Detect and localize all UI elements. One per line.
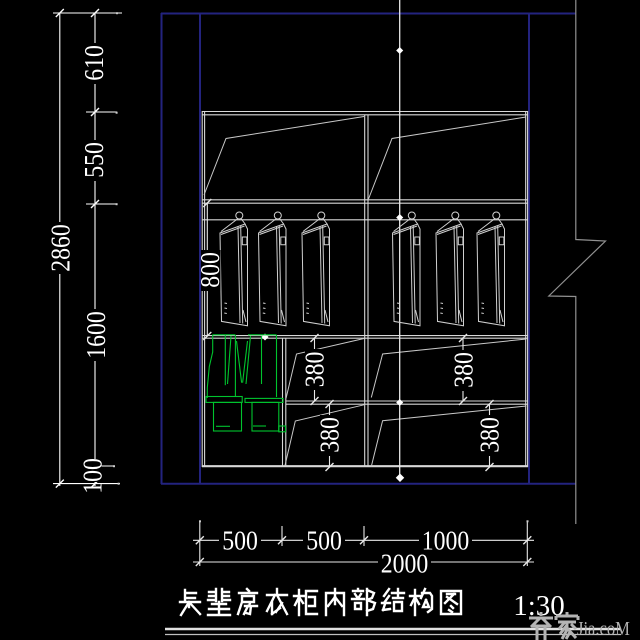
svg-text:1000: 1000	[422, 525, 470, 556]
svg-text:100: 100	[77, 458, 108, 494]
svg-text:Jia.coM: Jia.coM	[577, 618, 630, 640]
svg-text:610: 610	[79, 45, 110, 81]
svg-text:550: 550	[79, 142, 110, 178]
svg-text:2860: 2860	[45, 224, 76, 272]
svg-text:800: 800	[195, 252, 226, 288]
svg-text:380: 380	[474, 417, 505, 453]
svg-text:500: 500	[306, 525, 342, 556]
svg-text:2000: 2000	[381, 548, 429, 579]
svg-text:1600: 1600	[81, 311, 112, 359]
svg-text:380: 380	[299, 352, 330, 388]
svg-text:380: 380	[314, 417, 345, 453]
svg-text:380: 380	[448, 352, 479, 388]
svg-text:500: 500	[222, 525, 258, 556]
